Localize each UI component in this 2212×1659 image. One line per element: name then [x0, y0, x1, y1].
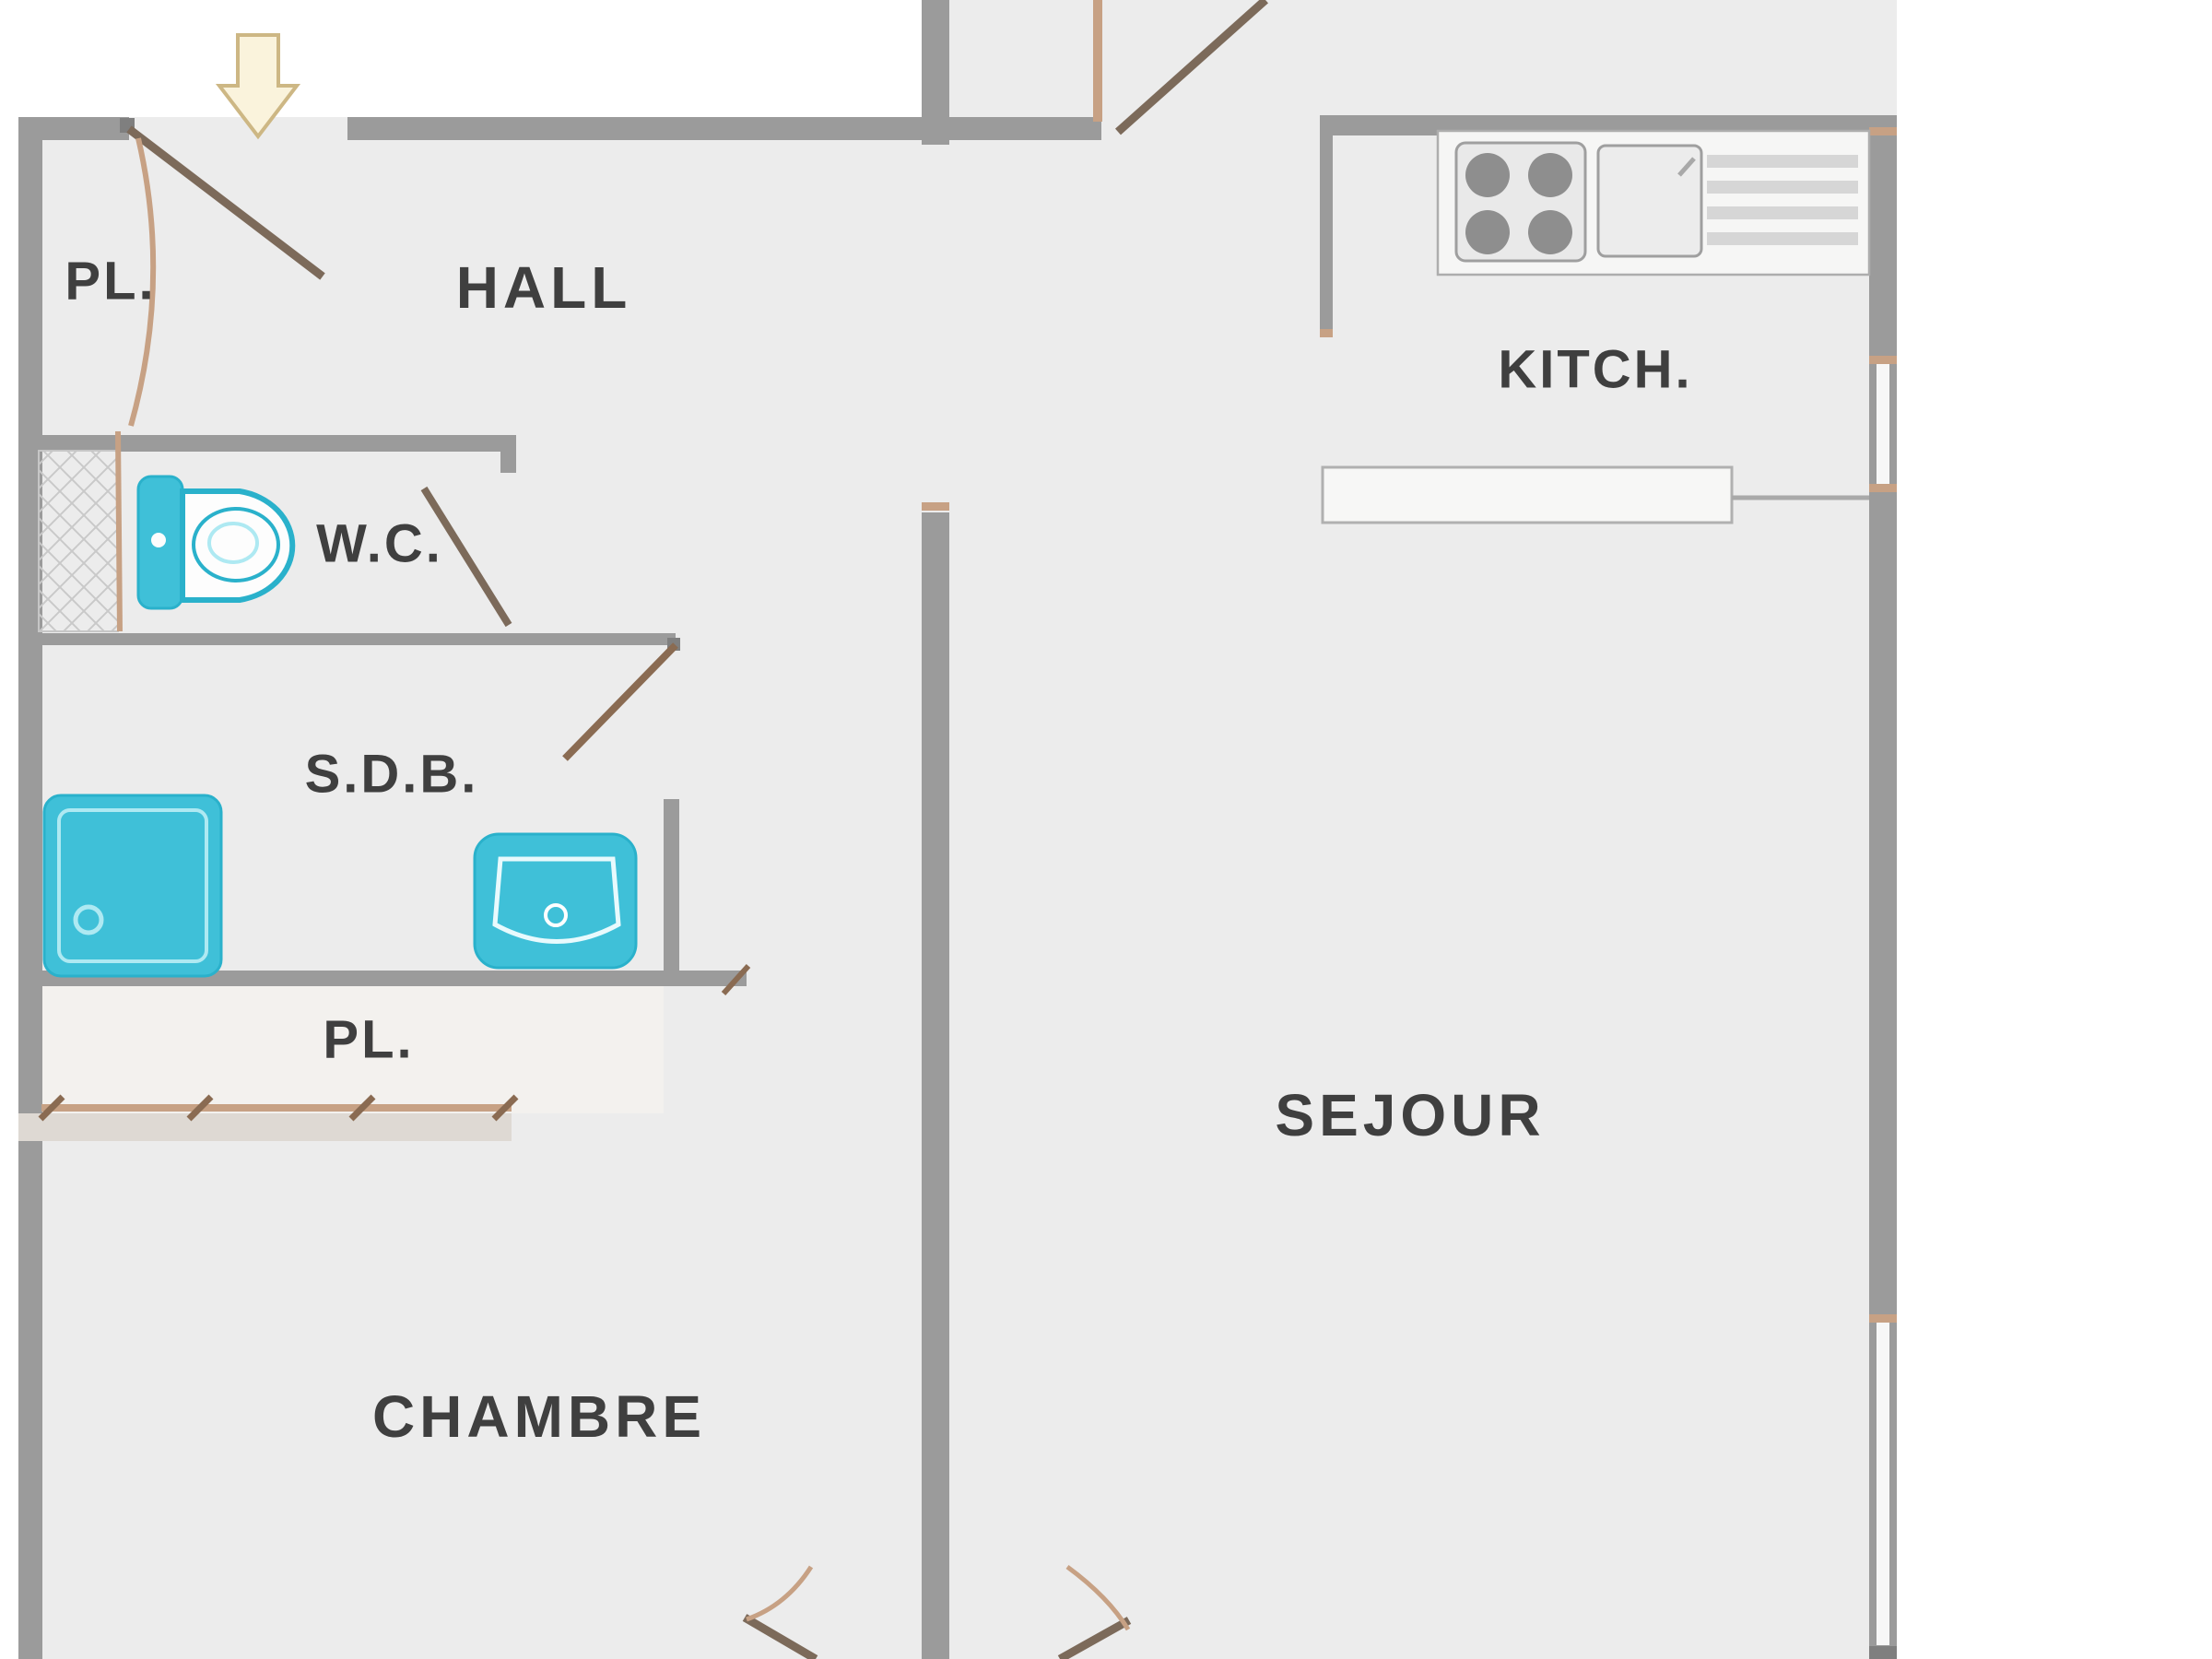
wall-top-left-stub — [18, 117, 129, 140]
kitchen-bar — [1323, 467, 1732, 523]
wall-kitchen-left — [1320, 115, 1333, 336]
shaft-side-line — [118, 431, 120, 631]
stove-burner-2 — [1528, 153, 1572, 197]
sdb-door-leaf — [565, 645, 676, 759]
window-tick-3 — [1869, 484, 1897, 492]
washbasin-icon — [475, 834, 636, 968]
toilet-tank-bolt — [151, 533, 166, 547]
label-hall: HALL — [456, 253, 632, 322]
wall-left — [18, 117, 42, 1659]
drainboard-bar-2 — [1707, 181, 1858, 194]
shower-tray — [44, 795, 221, 976]
label-sejour: SEJOUR — [1275, 1081, 1545, 1149]
drainboard-bar-3 — [1707, 206, 1858, 219]
wall-wc-sdb-divider — [18, 633, 676, 645]
wall-top-hall — [347, 117, 1101, 140]
wall-middle-top — [922, 0, 949, 145]
window-tick-1 — [1869, 127, 1897, 135]
wall-sdb-right — [664, 799, 679, 986]
plan-drawing — [0, 0, 2212, 1659]
window-tick-4 — [1869, 1314, 1897, 1323]
window-sejour-core — [1877, 1323, 1889, 1645]
drainboard-bar-1 — [1707, 155, 1858, 168]
chambre-door-arc — [747, 1567, 811, 1619]
entrance-door-leaf — [129, 129, 323, 276]
toilet-icon — [138, 477, 292, 608]
wall-wc-top — [18, 435, 516, 452]
wall-pl-bottom — [18, 1113, 512, 1141]
top-door-leaf-closed — [1093, 0, 1102, 122]
label-sdb: S.D.B. — [305, 744, 479, 806]
sejour-door-arc — [1067, 1567, 1128, 1630]
drainboard-bar-4 — [1707, 232, 1858, 245]
floor-plan: PL. HALL W.C. S.D.B. PL. CHAMBRE KITCH. … — [0, 0, 2212, 1659]
label-pl-bottom: PL. — [323, 1009, 414, 1071]
stove-burner-4 — [1528, 210, 1572, 254]
label-kitchen: KITCH. — [1498, 339, 1692, 401]
kitchen-unit — [1323, 131, 1869, 523]
wall-middle-cap-tick — [922, 502, 949, 511]
stove-icon — [1456, 143, 1585, 261]
wall-wc-top-stub — [500, 435, 516, 473]
wall-middle — [922, 512, 949, 1659]
label-pl-top: PL. — [65, 251, 156, 312]
window-kitchen-core — [1877, 364, 1889, 484]
label-chambre: CHAMBRE — [372, 1382, 706, 1451]
entrance-arrow-icon — [219, 35, 297, 136]
window-tick-2 — [1869, 356, 1897, 364]
top-door-leaf — [1118, 0, 1265, 132]
sink-basin — [1598, 146, 1701, 256]
wall-right-bottom-block — [1869, 1646, 1897, 1659]
stove-burner-1 — [1465, 153, 1510, 197]
wall-kitchen-left-tick — [1320, 329, 1333, 337]
duct-shaft-icon — [39, 451, 118, 631]
stove-burner-3 — [1465, 210, 1510, 254]
label-wc: W.C. — [316, 513, 443, 575]
sejour-door-leaf — [1060, 1620, 1129, 1659]
chambre-door-leaf — [745, 1618, 816, 1659]
shower-icon — [44, 795, 221, 976]
